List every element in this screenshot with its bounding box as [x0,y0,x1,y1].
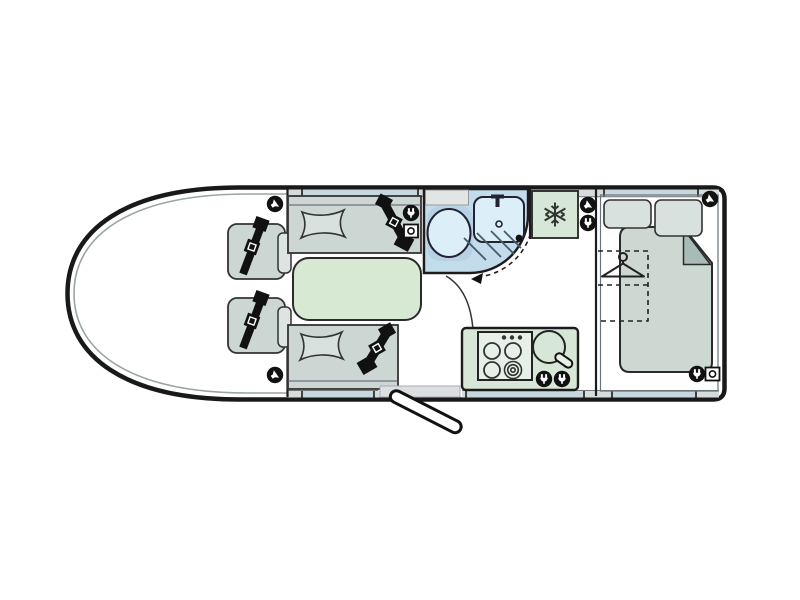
washroom-shelf [426,190,469,205]
travel-seat-front [288,193,421,253]
motorhome-floorplan [68,188,725,435]
plug-socket-icon [580,215,596,231]
plug-socket-icon [403,205,419,221]
speaker-icon [702,191,718,207]
plug-socket-icon [689,366,705,382]
hob-knob [518,335,522,339]
plug-socket-icon [536,371,552,387]
plug-socket-icon [554,371,570,387]
floorplan-canvas [0,0,800,600]
tv-point-icon [404,225,418,238]
window-segment [466,391,584,398]
lounge-table [293,258,421,320]
kitchen [462,328,578,390]
hob-knob [502,335,506,339]
entrance [380,386,463,435]
cab-seat-passenger [228,290,291,353]
speaker-icon [580,197,596,213]
speaker-icon [267,196,283,212]
tap-bar [491,195,504,199]
hob [478,332,532,380]
washbasin [474,195,524,243]
travel-seat-rear [288,322,398,389]
toilet [428,209,471,257]
door-hinge [516,235,523,242]
tap-stem [496,198,500,207]
hob-knob [510,335,514,339]
window-segment [302,391,374,398]
cab-seat-driver [228,216,291,279]
pillow [604,200,651,228]
pillow [655,200,702,236]
speaker-icon [267,367,283,383]
fridge [532,191,578,238]
page [0,0,800,600]
tv-point-icon [706,368,720,381]
